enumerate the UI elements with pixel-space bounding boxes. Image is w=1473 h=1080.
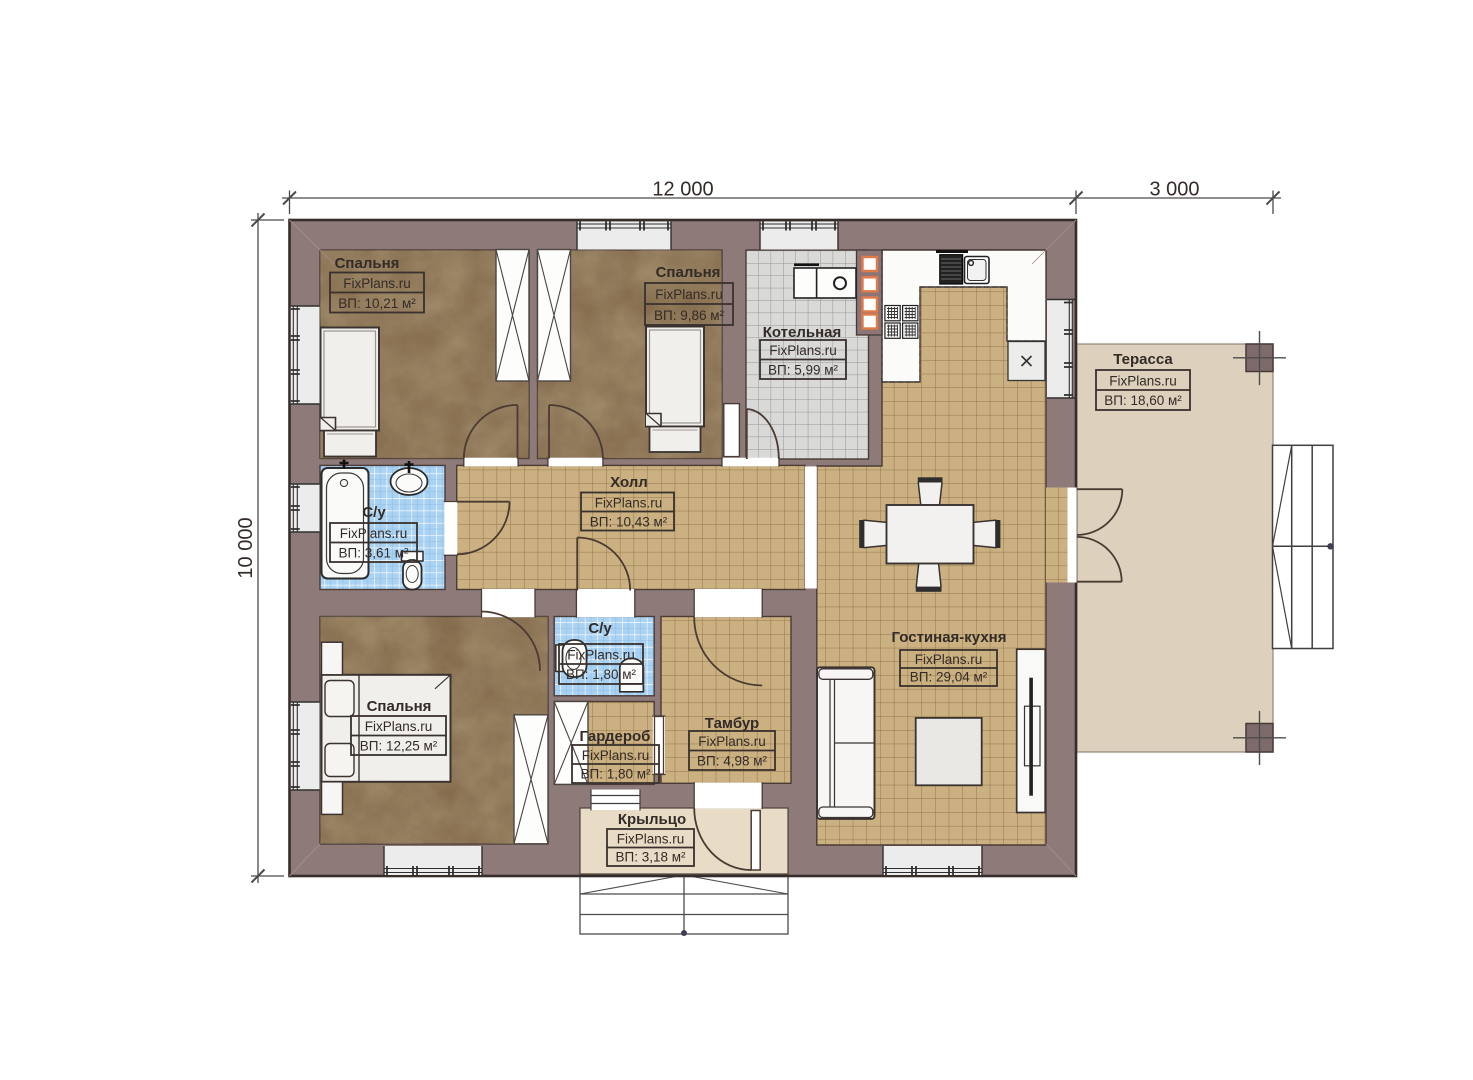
svg-text:С/у: С/у	[588, 620, 612, 637]
svg-text:FixPlans.ru: FixPlans.ru	[595, 496, 663, 511]
svg-text:ВП: 10,21 м²: ВП: 10,21 м²	[338, 296, 416, 311]
svg-text:ВП: 1,80 м²: ВП: 1,80 м²	[580, 767, 651, 782]
svg-text:Спальня: Спальня	[335, 255, 400, 272]
svg-text:FixPlans.ru: FixPlans.ru	[365, 719, 433, 734]
svg-text:Спальня: Спальня	[656, 264, 721, 281]
svg-text:12 000: 12 000	[652, 179, 713, 201]
svg-text:ВП: 12,25 м²: ВП: 12,25 м²	[360, 739, 438, 754]
svg-text:Спальня: Спальня	[367, 698, 432, 715]
svg-text:ВП: 3,61 м²: ВП: 3,61 м²	[338, 546, 409, 561]
svg-text:10 000: 10 000	[235, 517, 257, 578]
svg-text:Тамбур: Тамбур	[705, 715, 759, 732]
svg-text:Гостиная-кухня: Гостиная-кухня	[892, 629, 1007, 646]
svg-text:ВП: 4,98 м²: ВП: 4,98 м²	[697, 754, 768, 769]
svg-text:FixPlans.ru: FixPlans.ru	[582, 748, 650, 763]
svg-text:ВП: 18,60 м²: ВП: 18,60 м²	[1104, 393, 1182, 408]
svg-text:FixPlans.ru: FixPlans.ru	[655, 287, 723, 302]
svg-text:FixPlans.ru: FixPlans.ru	[340, 526, 408, 541]
svg-text:ВП: 1,80 м²: ВП: 1,80 м²	[566, 667, 637, 682]
svg-text:FixPlans.ru: FixPlans.ru	[1109, 374, 1177, 389]
svg-text:3 000: 3 000	[1149, 179, 1199, 201]
svg-text:FixPlans.ru: FixPlans.ru	[769, 343, 837, 358]
svg-text:FixPlans.ru: FixPlans.ru	[915, 652, 983, 667]
svg-text:FixPlans.ru: FixPlans.ru	[617, 832, 685, 847]
svg-text:ВП: 29,04 м²: ВП: 29,04 м²	[910, 670, 988, 685]
svg-text:Котельная: Котельная	[763, 324, 842, 341]
svg-text:FixPlans.ru: FixPlans.ru	[343, 276, 411, 291]
svg-text:FixPlans.ru: FixPlans.ru	[698, 734, 766, 749]
svg-text:Гардероб: Гардероб	[580, 728, 651, 745]
svg-text:ВП: 9,86 м²: ВП: 9,86 м²	[654, 308, 725, 323]
svg-text:ВП: 3,18 м²: ВП: 3,18 м²	[615, 850, 686, 865]
svg-text:ВП: 10,43 м²: ВП: 10,43 м²	[590, 515, 668, 530]
svg-text:Крыльцо: Крыльцо	[618, 811, 686, 828]
svg-text:С/у: С/у	[362, 504, 386, 521]
svg-text:FixPlans.ru: FixPlans.ru	[567, 648, 635, 663]
svg-text:Терасса: Терасса	[1113, 351, 1173, 368]
svg-text:Холл: Холл	[610, 474, 648, 491]
svg-text:ВП: 5,99 м²: ВП: 5,99 м²	[768, 363, 839, 378]
